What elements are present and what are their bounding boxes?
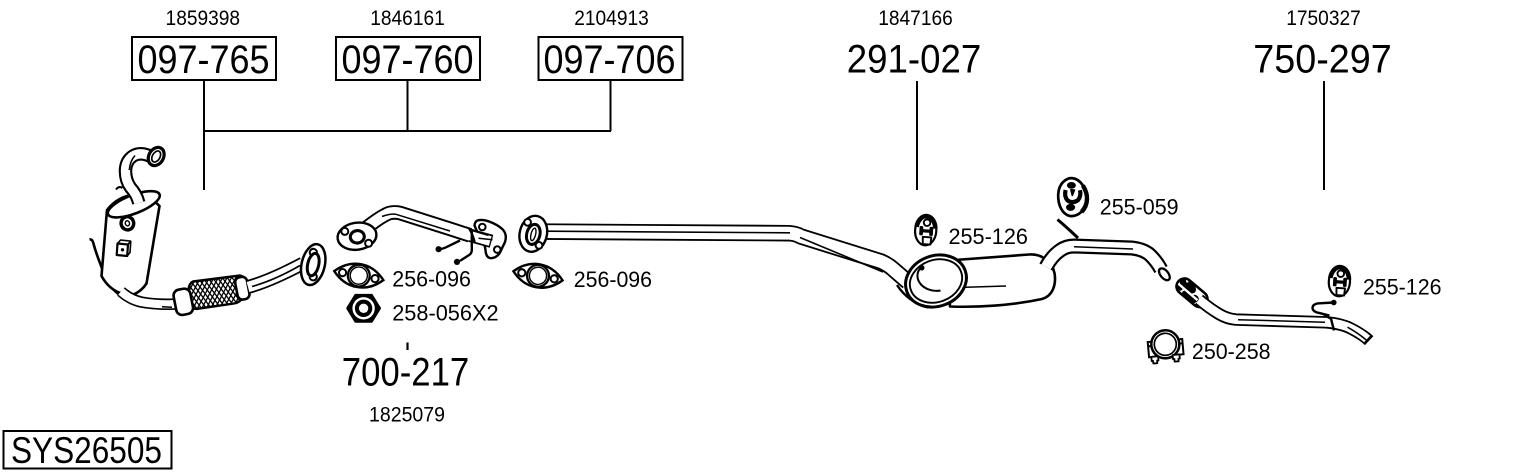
svg-text:256-096: 256-096	[574, 267, 652, 292]
svg-text:SYS26505: SYS26505	[11, 430, 162, 471]
svg-text:1750327: 1750327	[1286, 7, 1361, 30]
svg-text:1847166: 1847166	[878, 7, 953, 30]
svg-text:097-706: 097-706	[544, 38, 676, 82]
svg-text:097-760: 097-760	[342, 38, 474, 82]
svg-text:250-258: 250-258	[1192, 339, 1271, 364]
svg-text:750-297: 750-297	[1253, 38, 1392, 82]
svg-text:256-096: 256-096	[392, 267, 471, 292]
svg-text:255-059: 255-059	[1100, 195, 1179, 220]
svg-text:1825079: 1825079	[369, 403, 445, 427]
svg-text:1859398: 1859398	[166, 7, 241, 30]
svg-text:700-217: 700-217	[342, 351, 470, 395]
svg-text:258-056X2: 258-056X2	[392, 301, 498, 326]
svg-text:255-126: 255-126	[949, 224, 1028, 249]
svg-text:097-765: 097-765	[138, 38, 270, 82]
svg-text:2104913: 2104913	[574, 7, 649, 30]
svg-text:291-027: 291-027	[847, 38, 982, 82]
svg-text:255-126: 255-126	[1363, 275, 1442, 300]
svg-text:1846161: 1846161	[370, 7, 445, 30]
